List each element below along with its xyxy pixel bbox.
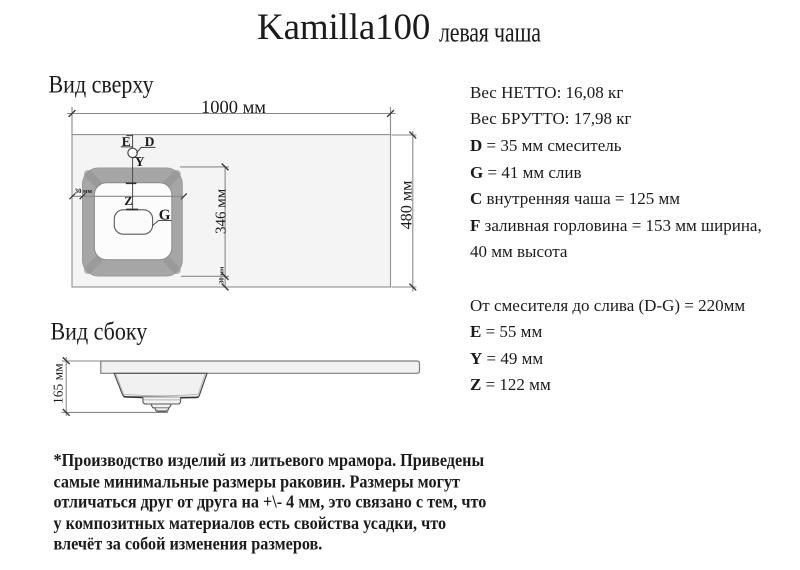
svg-text:480 мм: 480 мм: [397, 181, 415, 230]
svg-text:165 мм: 165 мм: [51, 363, 66, 404]
svg-text:30 мм: 30 мм: [75, 188, 93, 195]
svg-text:1000 мм: 1000 мм: [201, 98, 266, 118]
svg-text:Y: Y: [135, 154, 145, 169]
svg-text:D: D: [145, 134, 155, 149]
svg-text:30 мм: 30 мм: [219, 266, 226, 284]
svg-text:Z: Z: [124, 194, 132, 208]
svg-text:346 мм: 346 мм: [213, 188, 229, 234]
